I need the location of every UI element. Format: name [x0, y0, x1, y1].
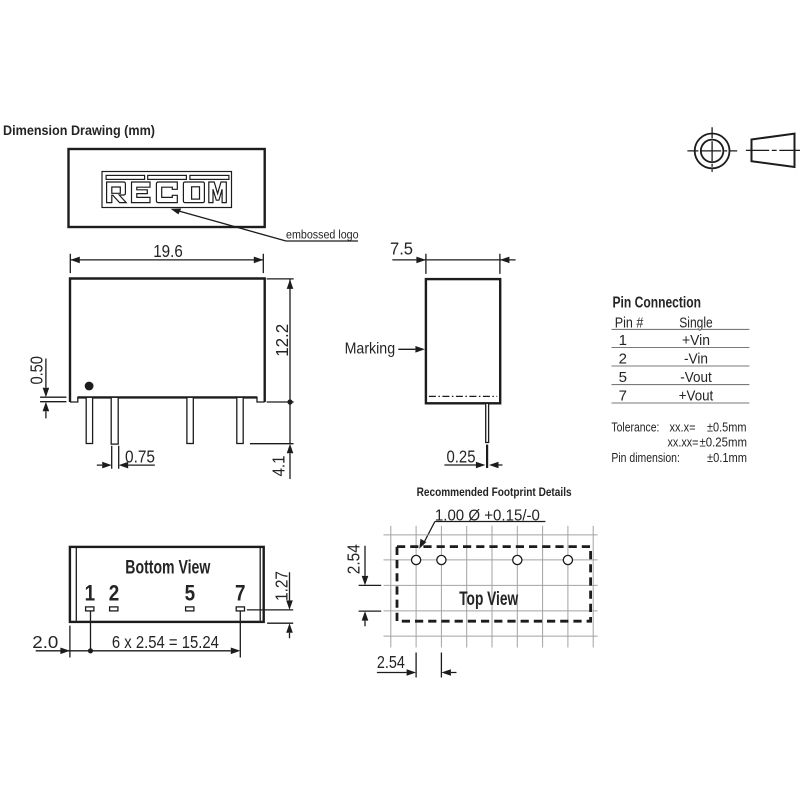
- svg-text:Tolerance:: Tolerance:: [611, 419, 659, 434]
- svg-text:-Vout: -Vout: [680, 369, 712, 386]
- svg-text:±0.1mm: ±0.1mm: [707, 450, 747, 465]
- svg-text:19.6: 19.6: [153, 241, 183, 261]
- svg-text:2: 2: [109, 581, 120, 606]
- svg-text:Pin Connection: Pin Connection: [613, 295, 702, 312]
- svg-text:2.54: 2.54: [344, 544, 364, 574]
- svg-text:1: 1: [619, 332, 627, 349]
- svg-text:embossed logo: embossed logo: [286, 227, 359, 241]
- svg-text:±0.5mm: ±0.5mm: [707, 419, 747, 434]
- svg-text:2.0: 2.0: [32, 632, 58, 652]
- svg-text:+Vin: +Vin: [682, 332, 710, 349]
- svg-text:12.2: 12.2: [272, 324, 292, 357]
- svg-text:Dimension Drawing (mm): Dimension Drawing (mm): [3, 123, 155, 138]
- svg-text:-Vin: -Vin: [684, 351, 708, 368]
- svg-text:5: 5: [619, 369, 627, 386]
- svg-text:Marking: Marking: [345, 340, 396, 357]
- svg-text:Pin dimension:: Pin dimension:: [611, 450, 680, 465]
- svg-text:Bottom View: Bottom View: [125, 557, 211, 579]
- svg-text:+Vout: +Vout: [679, 388, 714, 405]
- svg-text:7: 7: [235, 581, 246, 606]
- svg-text:6 x 2.54 = 15.24: 6 x 2.54 = 15.24: [112, 632, 219, 652]
- svg-text:1: 1: [85, 581, 96, 606]
- svg-text:2.54: 2.54: [377, 652, 405, 672]
- svg-text:7.5: 7.5: [390, 239, 413, 259]
- svg-text:1.27: 1.27: [271, 571, 291, 601]
- svg-text:5: 5: [185, 581, 196, 606]
- svg-text:xx.xx=: xx.xx=: [668, 435, 699, 450]
- svg-text:Top View: Top View: [459, 588, 519, 610]
- svg-text:0.75: 0.75: [125, 447, 155, 467]
- svg-text:±0.25mm: ±0.25mm: [700, 435, 748, 450]
- svg-text:0.50: 0.50: [27, 356, 47, 385]
- svg-text:Recommended Footprint Details: Recommended Footprint Details: [417, 487, 572, 499]
- svg-text:0.25: 0.25: [447, 447, 476, 467]
- svg-text:4.1: 4.1: [269, 456, 289, 477]
- svg-text:xx.x=: xx.x=: [670, 419, 696, 434]
- svg-text:2: 2: [619, 351, 627, 368]
- svg-text:7: 7: [619, 388, 627, 405]
